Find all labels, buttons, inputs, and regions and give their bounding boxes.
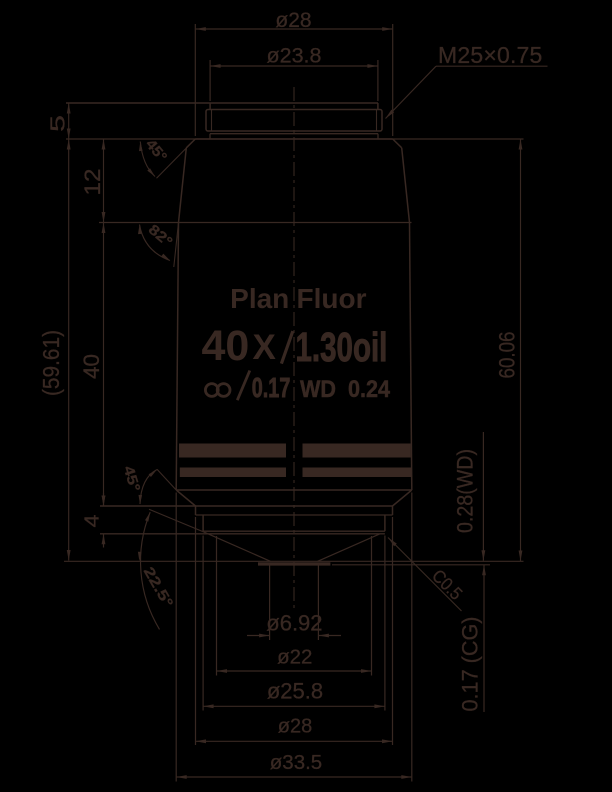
svg-text:ø28: ø28 xyxy=(275,9,311,32)
svg-text:0.17: 0.17 xyxy=(252,373,291,404)
svg-text:1.30oil: 1.30oil xyxy=(296,324,388,370)
svg-text:ø22: ø22 xyxy=(277,646,312,669)
svg-text:Plan: Plan xyxy=(230,283,289,314)
svg-text:40: 40 xyxy=(202,322,250,370)
svg-text:WD 0.24: WD 0.24 xyxy=(300,375,390,402)
svg-text:12: 12 xyxy=(80,169,105,196)
svg-text:ø28: ø28 xyxy=(278,715,312,737)
svg-text:4: 4 xyxy=(82,515,104,528)
svg-text:ø23.8: ø23.8 xyxy=(267,44,322,68)
svg-text:5: 5 xyxy=(46,115,69,132)
svg-text:X: X xyxy=(253,328,277,367)
svg-text:ø25.8: ø25.8 xyxy=(267,679,323,704)
svg-text:Fluor: Fluor xyxy=(297,283,367,314)
svg-text:0.17 (CG): 0.17 (CG) xyxy=(458,617,483,712)
svg-text:40: 40 xyxy=(79,354,104,379)
svg-text:60.06: 60.06 xyxy=(495,332,520,379)
svg-text:ø33.5: ø33.5 xyxy=(270,751,322,774)
svg-text:0.28(WD): 0.28(WD) xyxy=(452,449,477,533)
svg-text:M25×0.75: M25×0.75 xyxy=(438,42,543,68)
svg-text:(59.61): (59.61) xyxy=(38,330,64,396)
svg-text:ø6.92: ø6.92 xyxy=(266,611,322,636)
